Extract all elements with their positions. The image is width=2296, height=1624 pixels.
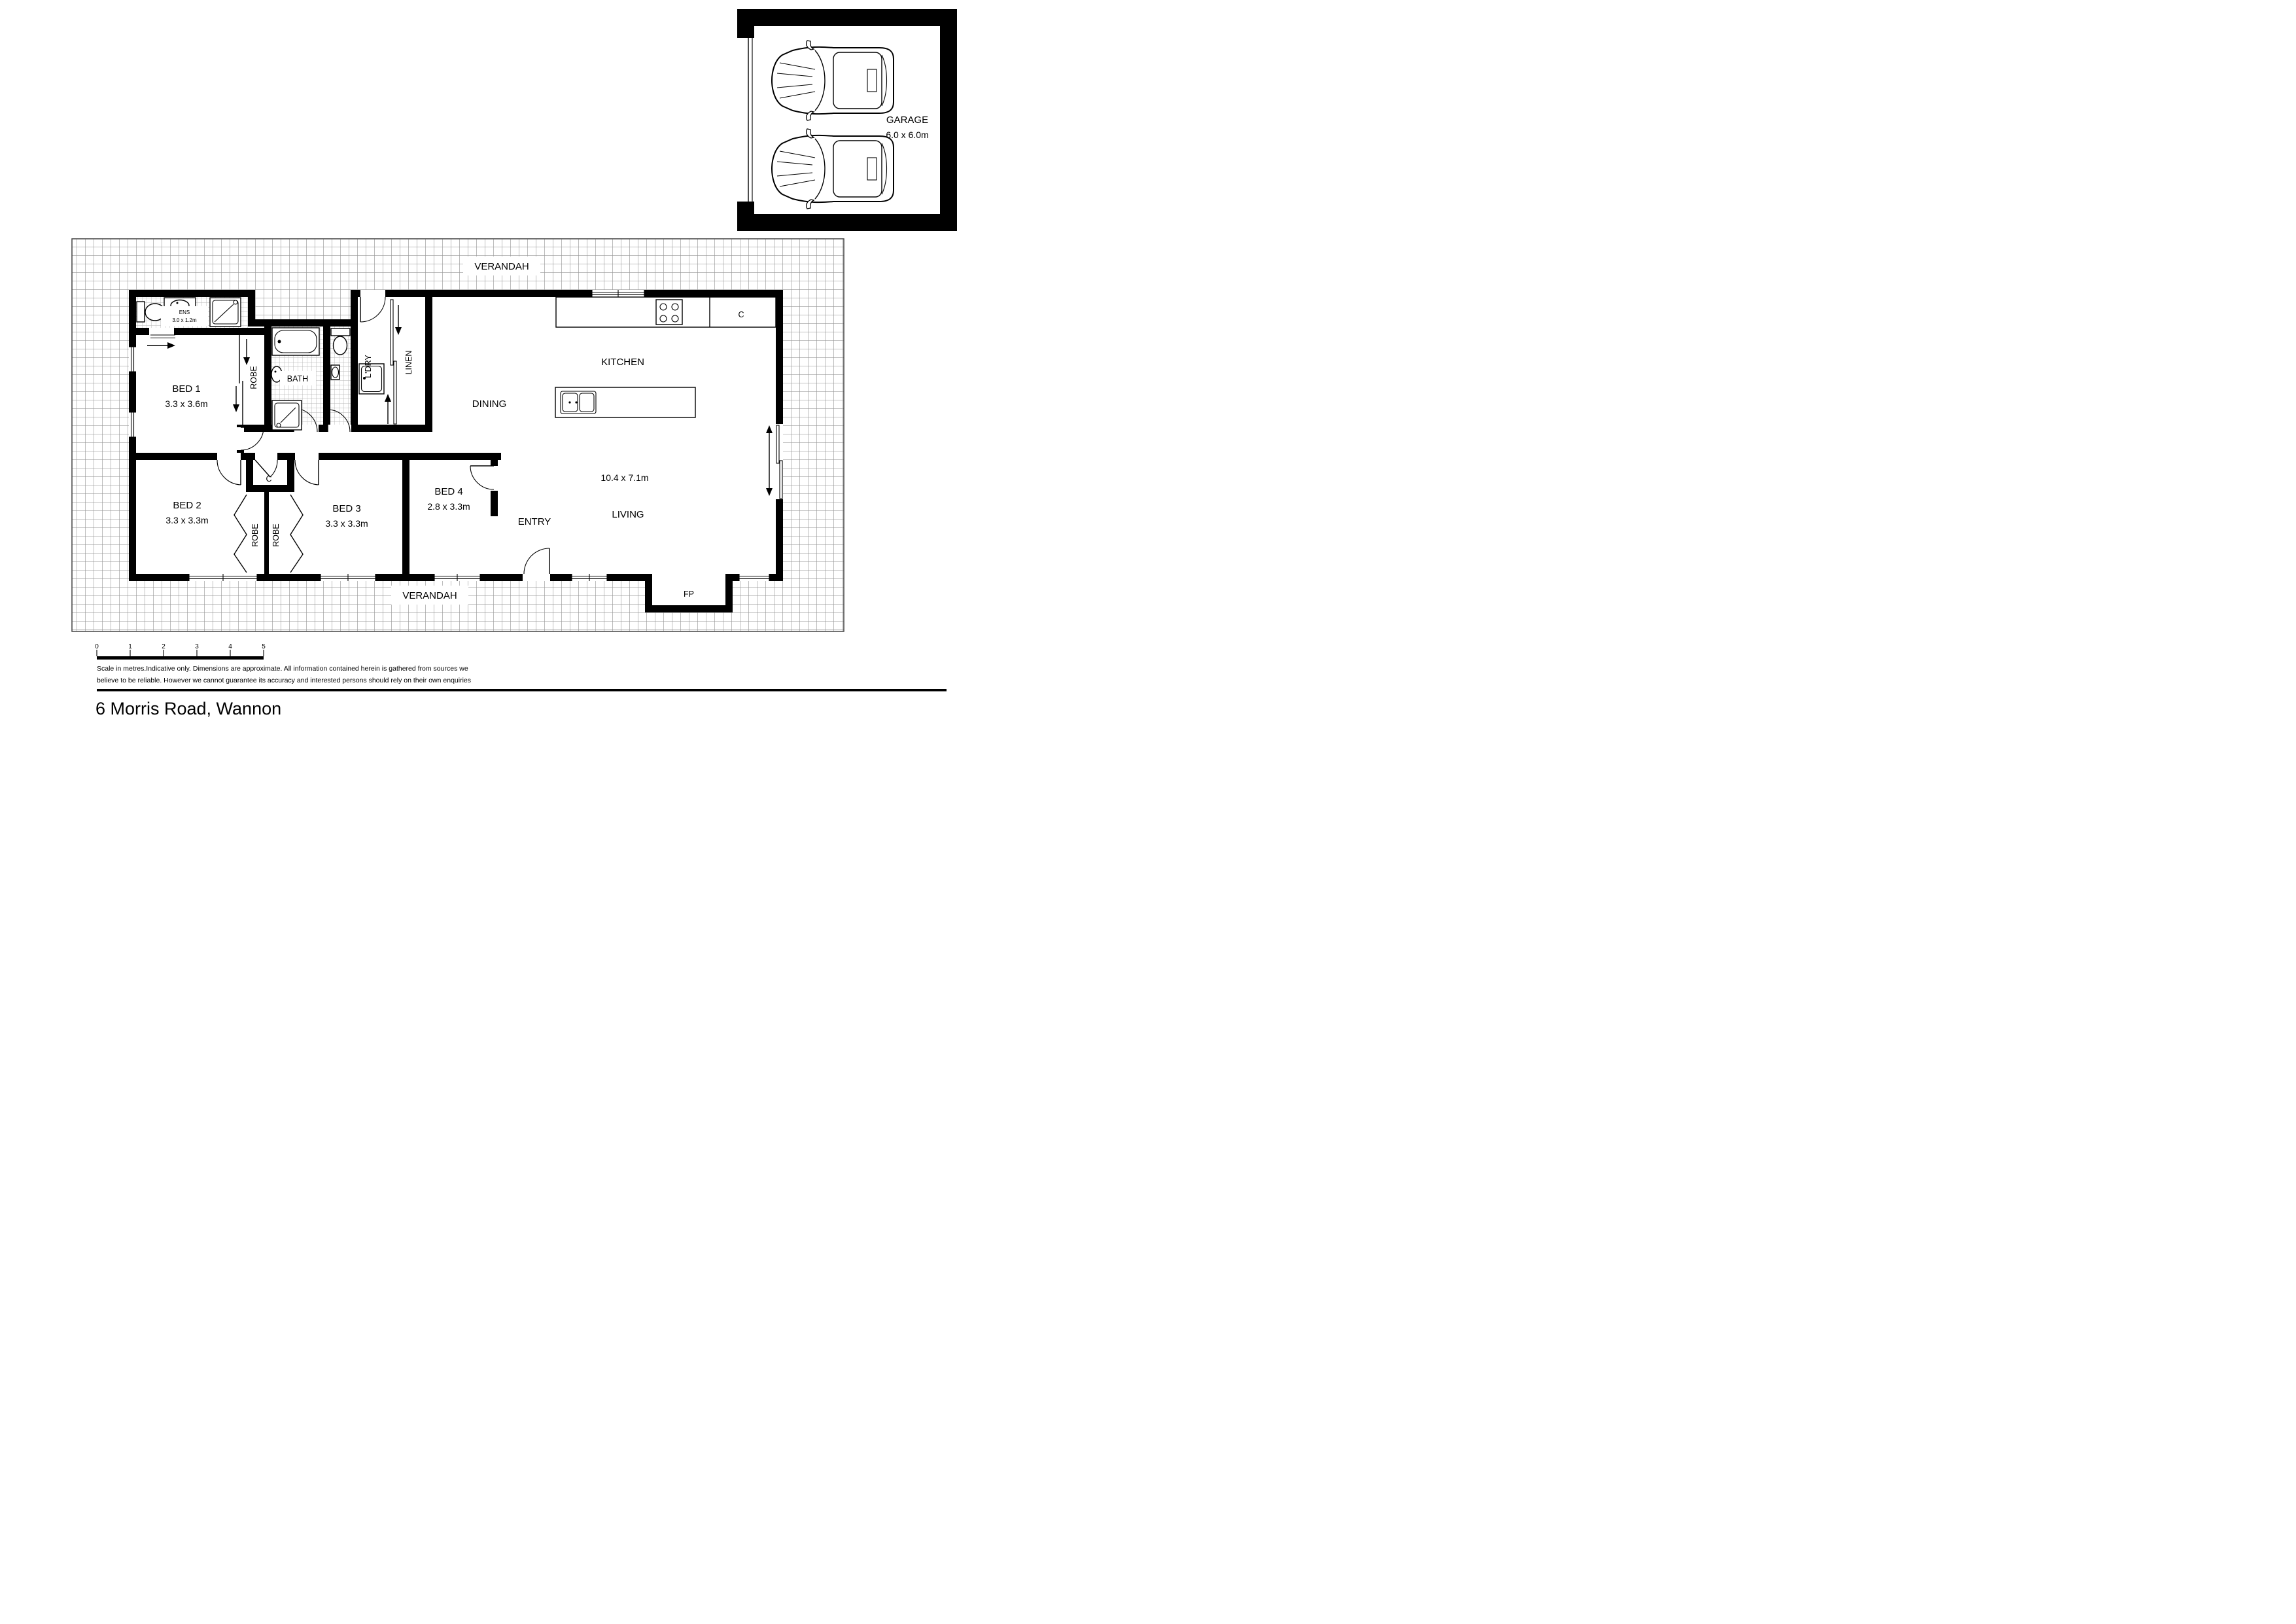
svg-text:2.8 x 3.3m: 2.8 x 3.3m bbox=[427, 501, 470, 512]
svg-text:3: 3 bbox=[195, 643, 199, 650]
svg-text:Scale in metres.Indicative onl: Scale in metres.Indicative only. Dimensi… bbox=[97, 665, 468, 673]
verandah-top-label: VERANDAH bbox=[474, 261, 529, 272]
garage-label: GARAGE bbox=[886, 115, 928, 126]
house-footprint bbox=[129, 290, 783, 612]
svg-text:5: 5 bbox=[262, 643, 266, 650]
entry-label: ENTRY bbox=[518, 516, 551, 527]
linen-label: LINEN bbox=[404, 351, 413, 375]
svg-text:BED 4: BED 4 bbox=[434, 486, 462, 497]
living-label: LIVING bbox=[612, 509, 644, 520]
svg-text:2: 2 bbox=[162, 643, 165, 650]
window bbox=[434, 574, 480, 581]
svg-text:1: 1 bbox=[128, 643, 132, 650]
svg-text:4: 4 bbox=[228, 643, 232, 650]
window bbox=[572, 574, 607, 581]
svg-text:ENS: ENS bbox=[179, 309, 190, 315]
svg-text:BED 2: BED 2 bbox=[173, 500, 201, 511]
window bbox=[592, 290, 644, 297]
svg-text:3.0 x 1.2m: 3.0 x 1.2m bbox=[172, 317, 197, 323]
svg-text:3.3 x 3.3m: 3.3 x 3.3m bbox=[325, 518, 368, 529]
laundry-label: L'DRY bbox=[364, 355, 373, 378]
basin-icon bbox=[331, 365, 339, 380]
floorplan-page: GARAGE 6.0 x 6.0m VERANDAH VERANDAH bbox=[0, 0, 1020, 722]
window bbox=[739, 574, 769, 581]
room-bath: BATH bbox=[280, 371, 316, 385]
window bbox=[129, 347, 136, 372]
divider-rule bbox=[97, 689, 947, 692]
svg-text:0: 0 bbox=[95, 643, 99, 650]
dining-label: DINING bbox=[472, 398, 507, 410]
robe-bed2-label: ROBE bbox=[251, 523, 260, 546]
door-ens-slider bbox=[147, 328, 175, 349]
svg-text:BED 1: BED 1 bbox=[172, 383, 200, 395]
svg-text:3.3 x 3.3m: 3.3 x 3.3m bbox=[165, 515, 208, 525]
disclaimer: Scale in metres.Indicative only. Dimensi… bbox=[97, 665, 471, 684]
robe-bed3-label: ROBE bbox=[271, 523, 281, 546]
garage: GARAGE 6.0 x 6.0m bbox=[737, 18, 948, 222]
cupboard-hall-label: C bbox=[266, 474, 271, 484]
stove-icon bbox=[656, 300, 682, 325]
garage-dims: 6.0 x 6.0m bbox=[886, 130, 928, 140]
verandah-bottom-label: VERANDAH bbox=[402, 590, 457, 601]
toilet-icon bbox=[137, 302, 165, 322]
svg-text:BED 3: BED 3 bbox=[332, 503, 360, 514]
kitchen-label: KITCHEN bbox=[601, 357, 644, 368]
svg-text:3.3 x 3.6m: 3.3 x 3.6m bbox=[165, 398, 207, 409]
window bbox=[189, 574, 257, 581]
address-title: 6 Morris Road, Wannon bbox=[96, 699, 281, 718]
robe-bed1-label: ROBE bbox=[249, 366, 258, 389]
shower-icon bbox=[272, 400, 302, 430]
scale-bar: 0 1 2 3 4 5 bbox=[95, 643, 266, 660]
fireplace-label: FP bbox=[684, 590, 694, 599]
bathtub-icon bbox=[272, 328, 319, 355]
cupboard-kitchen-label: C bbox=[738, 310, 744, 319]
window bbox=[129, 412, 136, 437]
floorplan-svg: GARAGE 6.0 x 6.0m VERANDAH VERANDAH bbox=[0, 0, 1020, 722]
svg-text:BATH: BATH bbox=[287, 374, 308, 383]
window bbox=[321, 574, 375, 581]
room-ens: ENS 3.0 x 1.2m bbox=[161, 306, 208, 326]
shower-icon bbox=[210, 298, 241, 327]
great-room-dims: 10.4 x 7.1m bbox=[600, 472, 648, 483]
svg-text:believe to be reliable. Howeve: believe to be reliable. However we canno… bbox=[97, 677, 471, 684]
